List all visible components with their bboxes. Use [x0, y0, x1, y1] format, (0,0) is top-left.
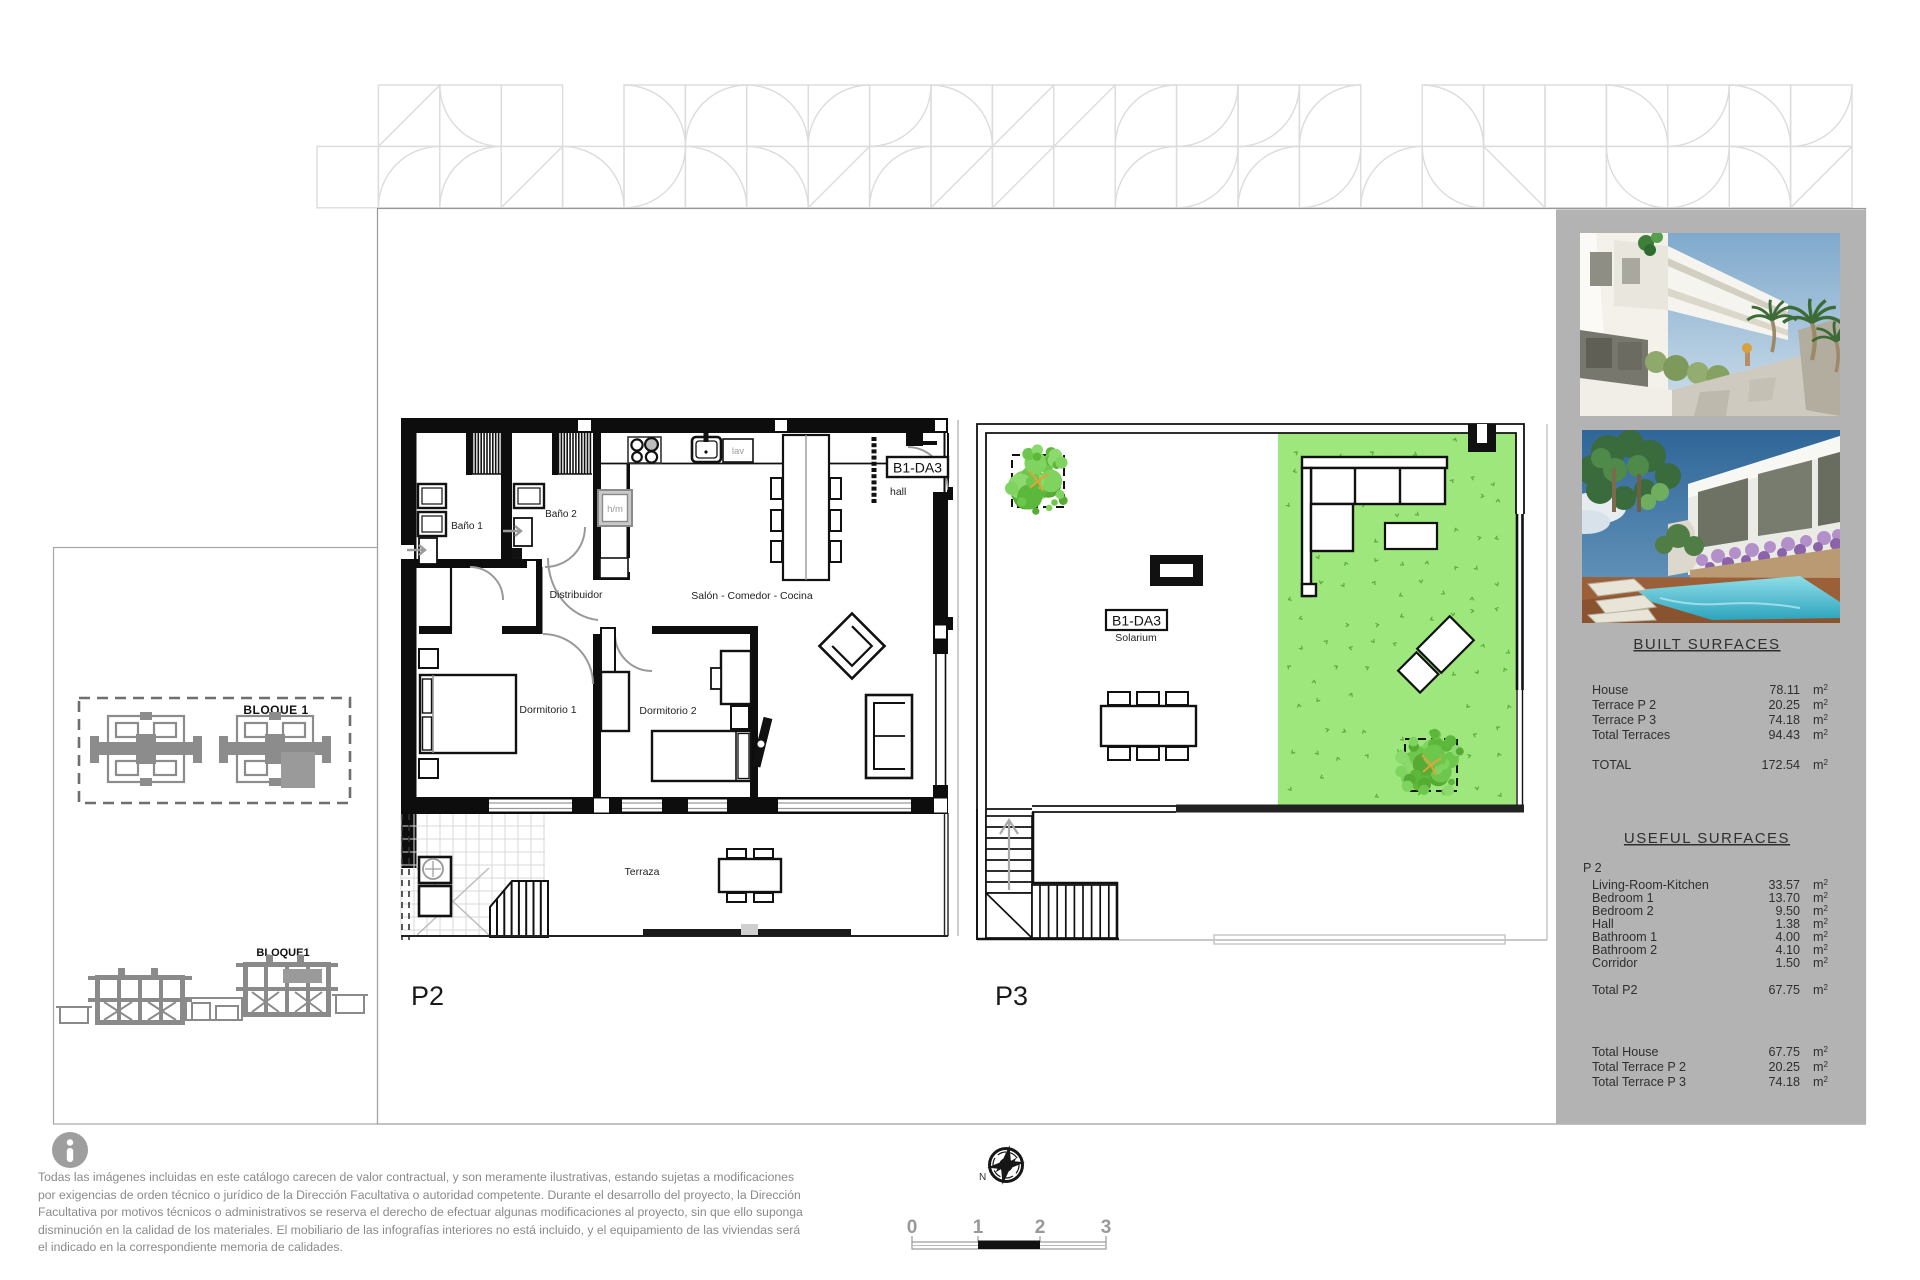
svg-text:disminución en la calidad de: disminución en la calidad de los materia… — [38, 1223, 800, 1237]
svg-text:1: 1 — [973, 1217, 984, 1238]
svg-text:Bedroom 2: Bedroom 2 — [1592, 904, 1654, 918]
svg-text:Todas las imágenes incluidas e: Todas las imágenes incluidas en este cat… — [38, 1170, 794, 1184]
svg-text:Total Terrace P 2: Total Terrace P 2 — [1592, 1060, 1686, 1074]
svg-text:Baño 1: Baño 1 — [451, 521, 483, 532]
svg-text:3: 3 — [1101, 1217, 1112, 1238]
svg-text:Salón - Comedor - Cocina: Salón - Comedor - Cocina — [691, 590, 813, 602]
svg-text:hall: hall — [890, 486, 906, 498]
svg-text:P2: P2 — [411, 981, 444, 1011]
svg-text:20.25: 20.25 — [1768, 698, 1800, 712]
svg-text:9.50: 9.50 — [1775, 904, 1800, 918]
svg-text:lav: lav — [732, 446, 744, 457]
svg-text:Hall: Hall — [1592, 917, 1614, 931]
svg-text:4.00: 4.00 — [1775, 930, 1800, 944]
svg-text:h/m: h/m — [607, 504, 623, 515]
svg-text:78.11: 78.11 — [1769, 683, 1800, 697]
svg-text:Living-Room-Kitchen: Living-Room-Kitchen — [1592, 878, 1709, 892]
svg-text:74.18: 74.18 — [1768, 713, 1800, 727]
svg-text:Terrace P 2: Terrace P 2 — [1592, 698, 1656, 712]
svg-text:1.50: 1.50 — [1775, 956, 1800, 970]
svg-text:P3: P3 — [995, 981, 1028, 1011]
svg-text:Bathroom 1: Bathroom 1 — [1592, 930, 1657, 944]
svg-text:B1-DA3: B1-DA3 — [893, 460, 942, 476]
svg-text:67.75: 67.75 — [1768, 983, 1800, 997]
svg-text:N: N — [979, 1172, 986, 1183]
svg-text:P 2: P 2 — [1583, 861, 1602, 875]
svg-text:Terraza: Terraza — [624, 866, 659, 878]
svg-text:0: 0 — [907, 1217, 918, 1238]
svg-text:el indicado en la correspondie: el indicado en la correspondiente memori… — [38, 1240, 343, 1254]
svg-text:20.25: 20.25 — [1768, 1060, 1800, 1074]
svg-text:BUILT SURFACES: BUILT SURFACES — [1633, 636, 1780, 653]
svg-text:B1-DA3: B1-DA3 — [1112, 613, 1161, 629]
svg-text:74.18: 74.18 — [1768, 1075, 1800, 1089]
svg-text:Distribuidor: Distribuidor — [549, 589, 603, 601]
svg-text:33.57: 33.57 — [1768, 878, 1800, 892]
svg-text:4.10: 4.10 — [1775, 943, 1800, 957]
svg-text:Dormitorio 1: Dormitorio 1 — [519, 704, 576, 716]
svg-text:94.43: 94.43 — [1768, 728, 1800, 742]
svg-text:13.70: 13.70 — [1768, 891, 1800, 905]
svg-text:1.38: 1.38 — [1775, 917, 1800, 931]
svg-text:Corridor: Corridor — [1592, 956, 1638, 970]
svg-text:Solarium: Solarium — [1115, 632, 1157, 644]
svg-text:Bedroom 1: Bedroom 1 — [1592, 891, 1654, 905]
svg-text:Terrace P 3: Terrace P 3 — [1592, 713, 1656, 727]
svg-text:Total House: Total House — [1592, 1045, 1659, 1059]
svg-text:Total Terraces: Total Terraces — [1592, 728, 1670, 742]
svg-text:USEFUL SURFACES: USEFUL SURFACES — [1624, 830, 1790, 847]
svg-text:Total Terrace P 3: Total Terrace P 3 — [1592, 1075, 1686, 1089]
svg-text:Bathroom 2: Bathroom 2 — [1592, 943, 1657, 957]
svg-text:TOTAL: TOTAL — [1592, 758, 1631, 772]
svg-text:House: House — [1592, 683, 1628, 697]
svg-text:Baño 2: Baño 2 — [545, 509, 577, 520]
svg-text:67.75: 67.75 — [1768, 1045, 1800, 1059]
svg-text:Facultativa por motivos técnic: Facultativa por motivos técnicos o admin… — [38, 1205, 803, 1219]
svg-text:2: 2 — [1035, 1217, 1046, 1238]
svg-text:Dormitorio 2: Dormitorio 2 — [639, 705, 696, 717]
svg-text:172.54: 172.54 — [1761, 758, 1800, 772]
svg-text:por exigencias de orden técni: por exigencias de orden técnico o jurídi… — [38, 1188, 801, 1202]
svg-text:Total P2: Total P2 — [1592, 983, 1638, 997]
